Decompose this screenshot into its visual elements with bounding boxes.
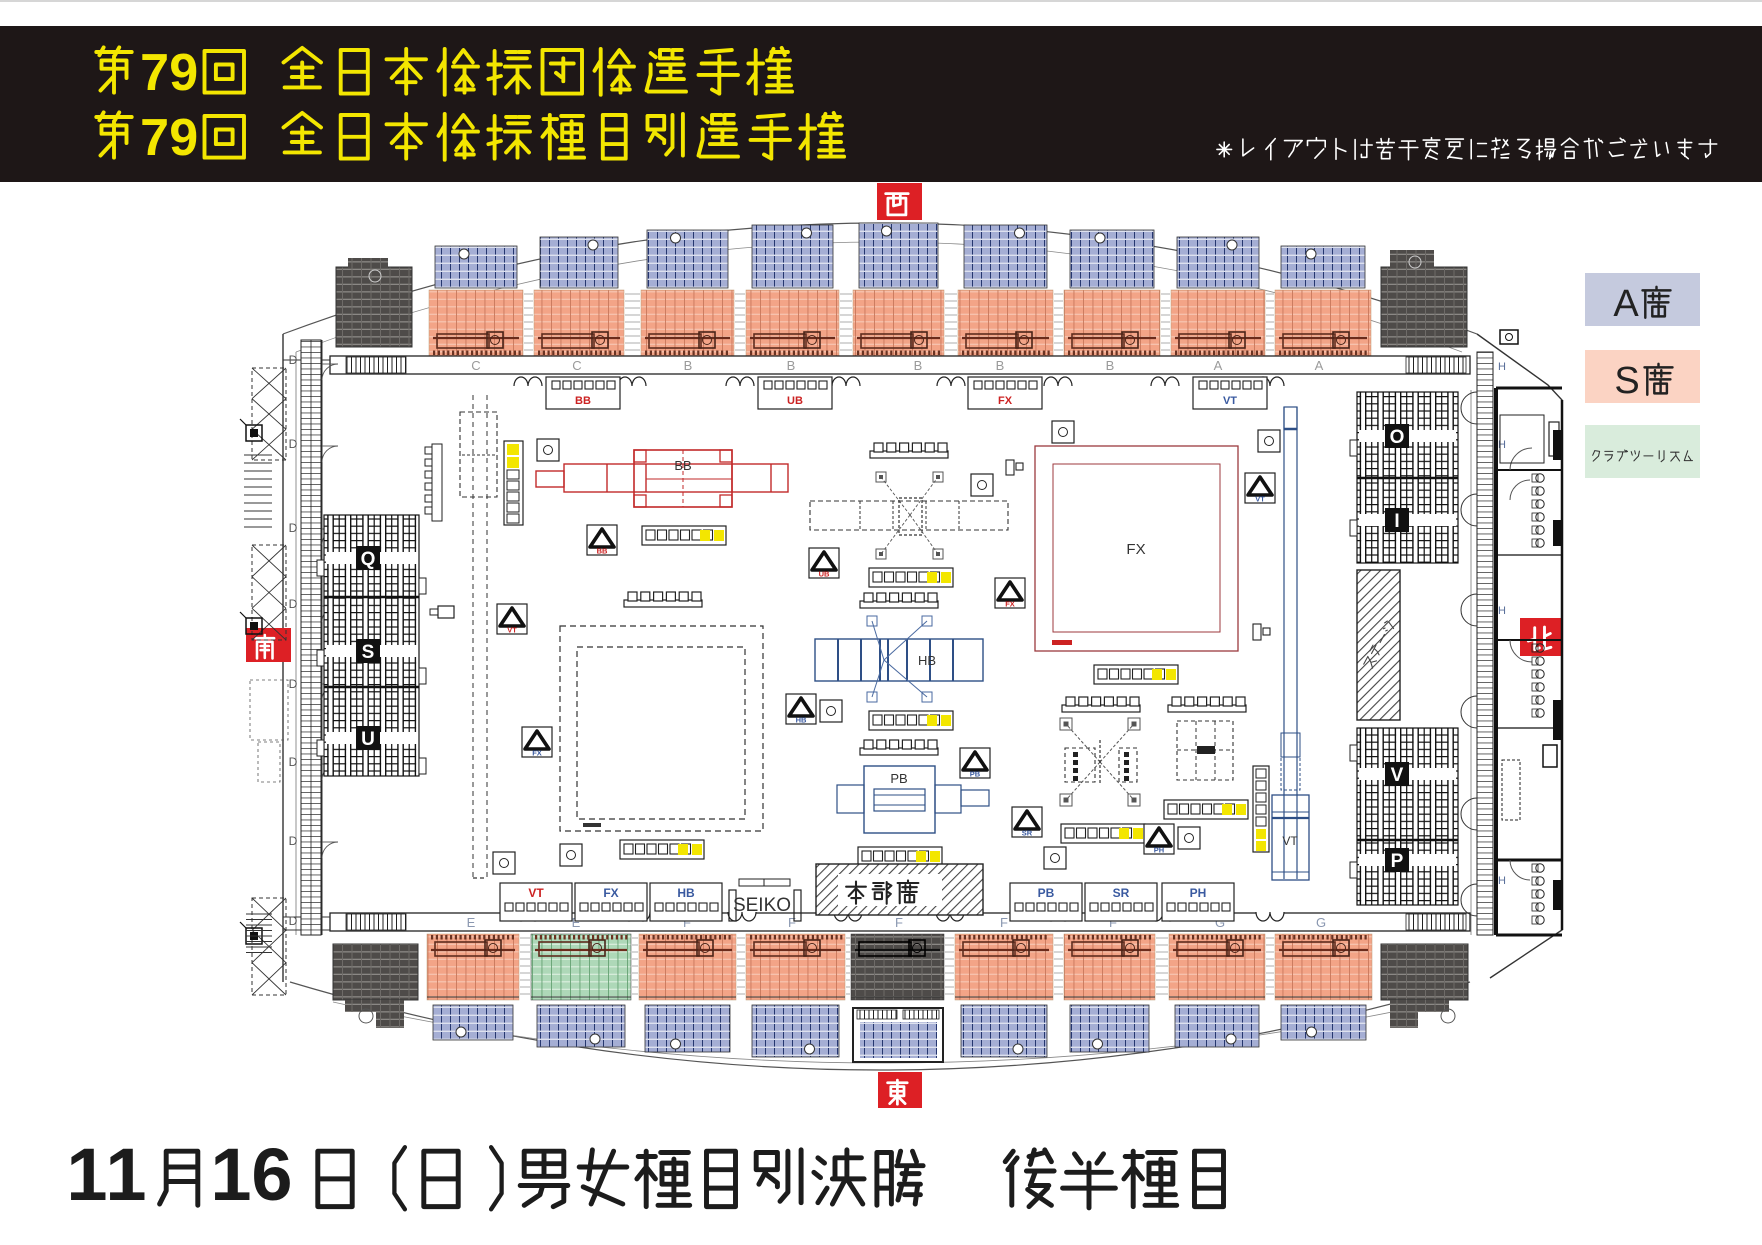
svg-text:H: H: [1498, 605, 1506, 617]
svg-text:F: F: [1000, 915, 1008, 930]
svg-text:HB: HB: [796, 716, 807, 725]
svg-text:C: C: [572, 358, 581, 373]
svg-text:U: U: [361, 729, 375, 750]
svg-text:G: G: [1316, 915, 1326, 930]
svg-text:7: 7: [140, 44, 169, 102]
svg-text:PH: PH: [1154, 846, 1164, 855]
svg-text:B: B: [684, 358, 693, 373]
svg-text:S: S: [362, 642, 375, 663]
svg-text:FX: FX: [1126, 541, 1145, 558]
svg-text:D: D: [289, 914, 298, 928]
svg-text:1: 1: [210, 1133, 251, 1216]
svg-text:D: D: [289, 437, 298, 451]
svg-text:VT: VT: [1223, 395, 1237, 407]
svg-text:F: F: [895, 915, 903, 930]
svg-text:A: A: [1315, 358, 1324, 373]
svg-text:UB: UB: [819, 570, 830, 579]
svg-text:7: 7: [140, 109, 169, 167]
svg-text:C: C: [471, 358, 480, 373]
svg-text:B: B: [787, 358, 796, 373]
svg-text:HB: HB: [918, 653, 936, 668]
svg-text:1: 1: [105, 1133, 146, 1216]
svg-text:VT: VT: [1282, 834, 1298, 848]
svg-text:Q: Q: [361, 549, 376, 570]
svg-text:VT: VT: [528, 886, 544, 900]
svg-text:O: O: [1390, 427, 1405, 448]
svg-text:D: D: [289, 677, 298, 691]
svg-text:D: D: [289, 353, 298, 367]
svg-text:PH: PH: [1190, 886, 1207, 900]
svg-text:A: A: [1613, 283, 1639, 325]
svg-text:P: P: [1391, 851, 1404, 872]
svg-text:6: 6: [251, 1133, 292, 1216]
svg-text:FX: FX: [532, 749, 542, 758]
svg-text:BB: BB: [597, 547, 608, 556]
svg-text:D: D: [289, 521, 298, 535]
svg-text:UB: UB: [787, 395, 803, 407]
svg-text:SEIKO: SEIKO: [733, 895, 791, 916]
svg-text:HB: HB: [677, 886, 695, 900]
svg-text:9: 9: [169, 44, 198, 102]
svg-text:D: D: [289, 597, 298, 611]
svg-text:FX: FX: [998, 395, 1013, 407]
svg-text:S: S: [1614, 360, 1639, 402]
svg-text:PB: PB: [1038, 886, 1055, 900]
svg-text:B: B: [914, 358, 923, 373]
svg-text:VT: VT: [507, 626, 517, 635]
svg-text:E: E: [467, 915, 476, 930]
svg-text:V: V: [1391, 765, 1404, 786]
svg-text:VT: VT: [1255, 495, 1265, 504]
svg-text:1: 1: [66, 1133, 107, 1216]
svg-text:SR: SR: [1022, 829, 1033, 838]
svg-text:H: H: [1498, 439, 1506, 451]
svg-text:D: D: [289, 834, 298, 848]
svg-text:PB: PB: [890, 771, 907, 786]
svg-text:PB: PB: [970, 770, 981, 779]
svg-text:SR: SR: [1113, 886, 1130, 900]
svg-text:F: F: [788, 915, 796, 930]
svg-text:B: B: [1106, 358, 1115, 373]
svg-text:9: 9: [169, 109, 198, 167]
svg-text:D: D: [289, 755, 298, 769]
svg-text:FX: FX: [1005, 600, 1015, 609]
svg-text:FX: FX: [603, 886, 618, 900]
svg-text:I: I: [1394, 511, 1399, 532]
svg-text:BB: BB: [674, 458, 691, 473]
svg-text:B: B: [996, 358, 1005, 373]
svg-text:H: H: [1498, 361, 1506, 373]
svg-text:H: H: [1498, 875, 1506, 887]
svg-text:BB: BB: [575, 395, 591, 407]
svg-text:A: A: [1214, 358, 1223, 373]
